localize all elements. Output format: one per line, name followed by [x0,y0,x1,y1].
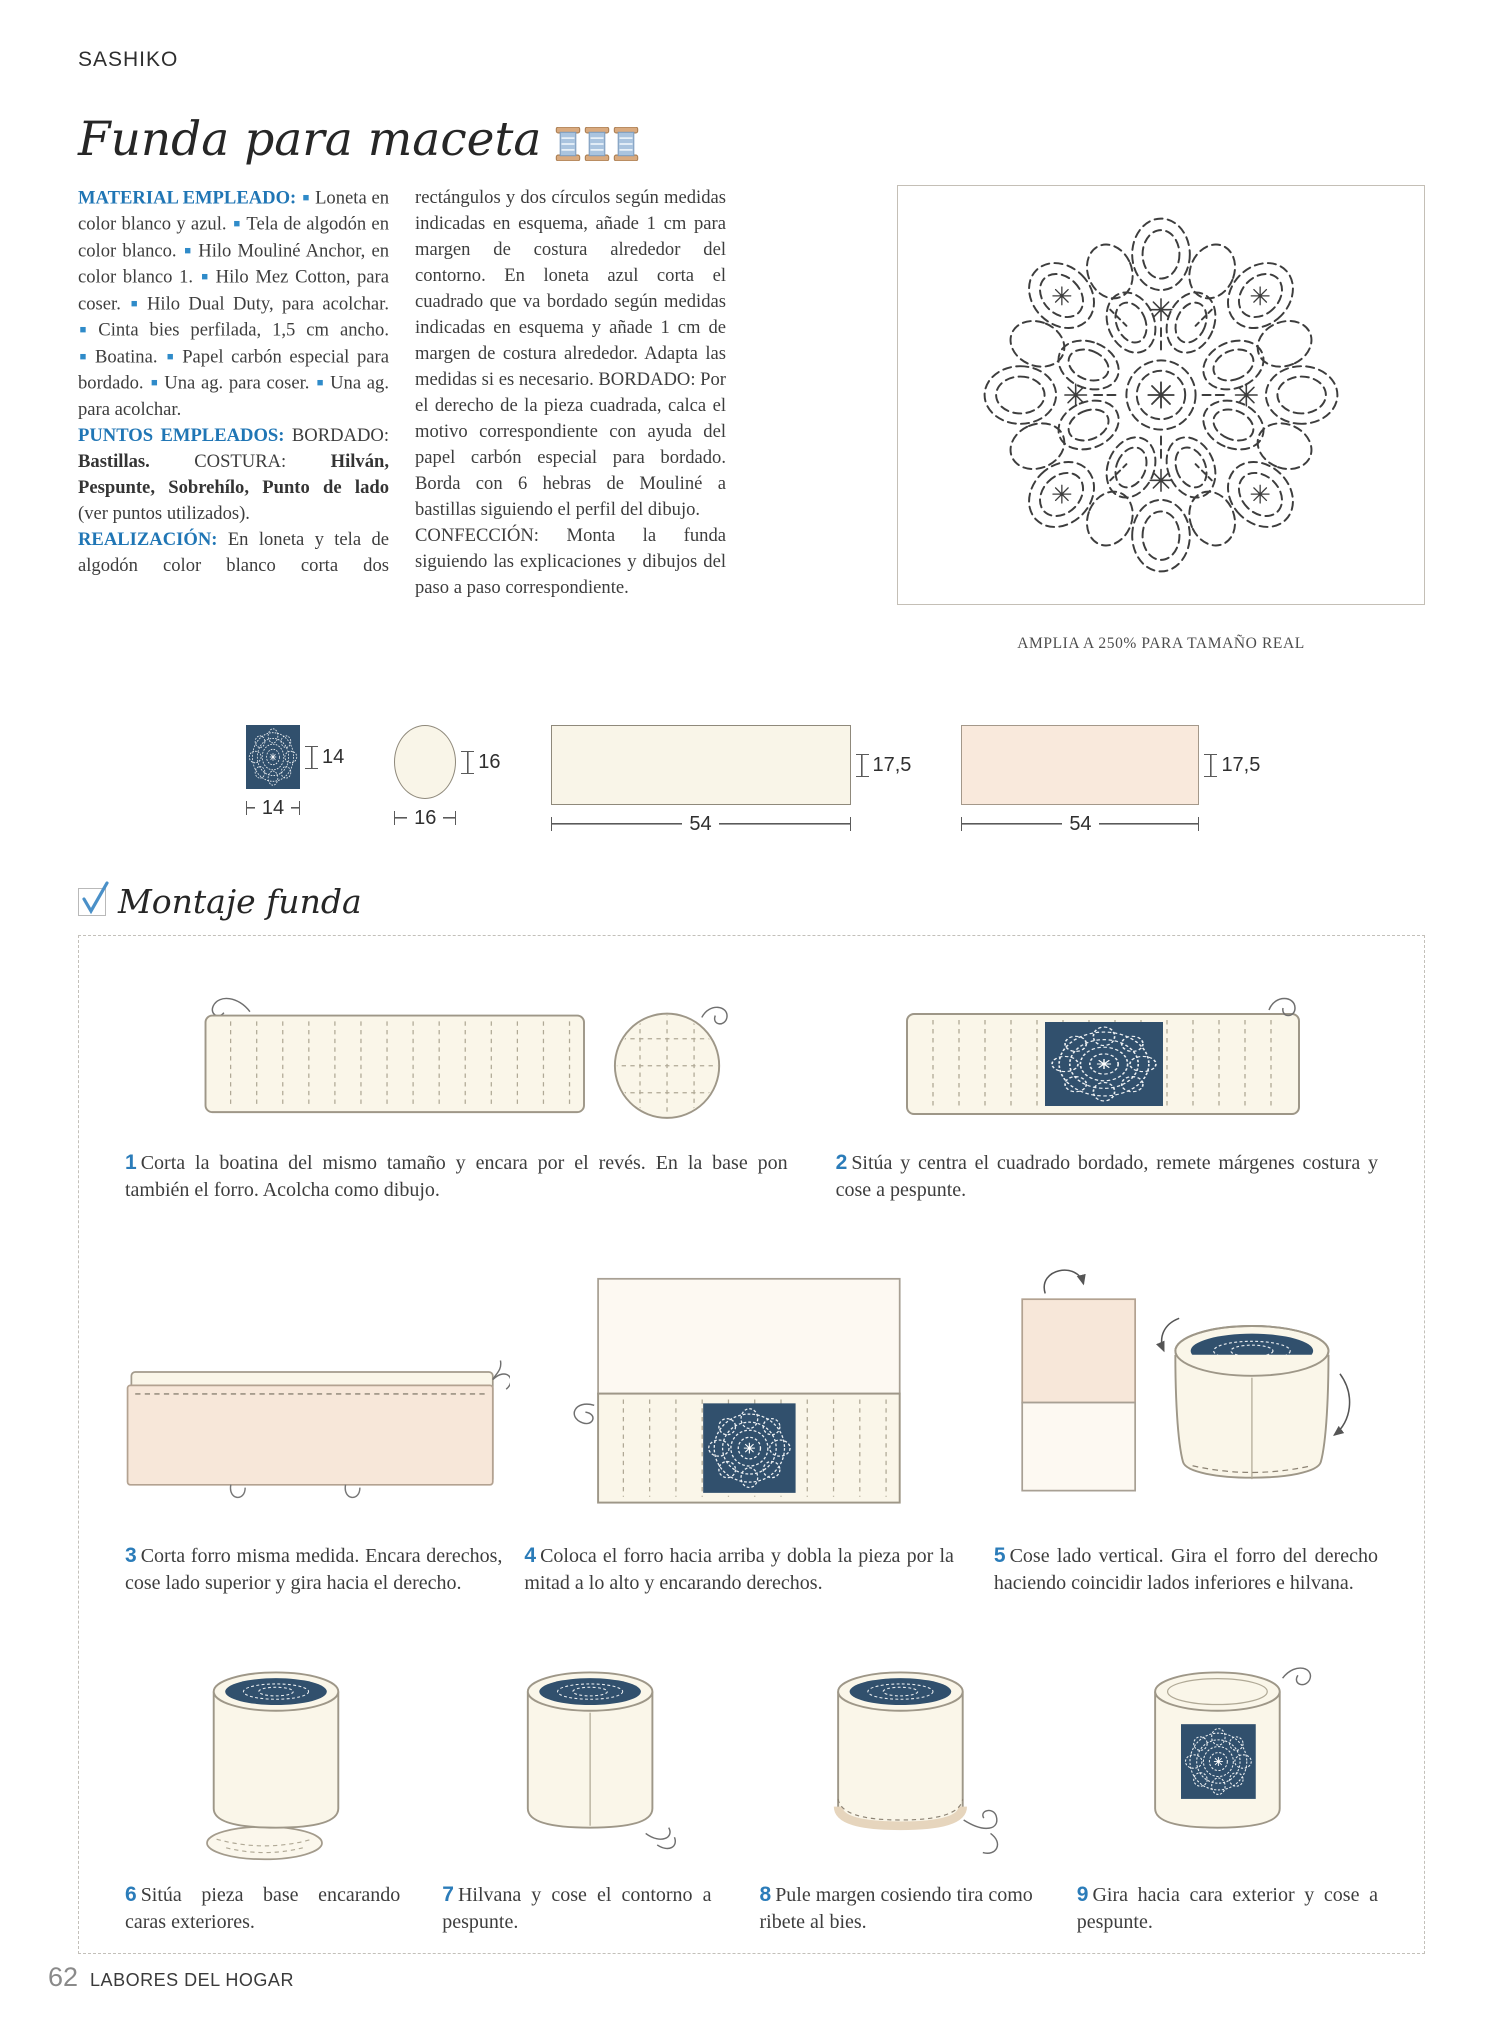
dim-height: 17,5 [1221,754,1260,777]
turning-cover-drawing [1008,1259,1358,1527]
embroidered-square-shape [246,725,300,789]
section-kicker: SASHIKO [78,48,1425,72]
magazine-page: SASHIKO Funda para maceta MATERIAL EMPLE… [0,0,1500,2040]
step-8-caption: 8Pule margen cosiendo tira como ribete a… [760,1882,1033,1935]
step-5: 5Cose lado vertical. Gira el forro del d… [980,1259,1386,1596]
measurement-schema: 14 14 16 16 17,5 54 17,5 54 [246,725,1425,834]
schema-circle-piece: 16 16 [394,725,500,828]
circle-shape [394,725,456,799]
step-number: 5 [994,1544,1010,1567]
step-5-caption: 5Cose lado vertical. Gira el forro del d… [994,1543,1378,1596]
dim-width: 14 [255,797,291,820]
article: MATERIAL EMPLEADO: ■Loneta en color blan… [78,185,1425,653]
step-4-caption: 4Coloca el forro hacia arriba y dobla la… [524,1543,954,1596]
schema-square-piece: 14 14 [246,725,344,818]
quilted-rectangle-and-circle-drawing [192,984,752,1134]
steps-row-1: 1Corta la boatina del mismo tamaño y enc… [117,962,1386,1203]
step-3-caption: 3Corta forro misma medida. Encara derech… [125,1543,502,1596]
step-number: 3 [125,1544,141,1567]
step-text: Hilvana y cose el contorno a pespunte. [442,1884,711,1933]
step-2-illustration [828,962,1386,1134]
step-9-illustration [1069,1638,1386,1866]
step-number: 7 [442,1883,458,1906]
thread-spool-icon [584,127,610,161]
step-text: Cose lado vertical. Gira el forro del de… [994,1545,1378,1594]
step-number: 4 [524,1544,540,1567]
thread-spool-icon [555,127,581,161]
page-title: Funda para maceta [78,116,541,163]
step-text: Coloca el forro hacia arriba y dobla la … [524,1545,954,1594]
steps-box: 1Corta la boatina del mismo tamaño y enc… [78,935,1425,1954]
montaje-header: Montaje funda [78,882,1425,921]
dim-width: 54 [1062,813,1098,836]
montaje-title: Montaje funda [118,882,362,921]
dim-height: 17,5 [873,754,912,777]
title-row: Funda para maceta [78,116,1425,163]
quilted-rectangle-with-embroidered-square-drawing [892,984,1322,1134]
step-1-caption: 1Corta la boatina del mismo tamaño y enc… [125,1150,788,1203]
step-text: Pule margen cosiendo tira como ribete al… [760,1884,1033,1933]
step-4-illustration [510,1259,980,1527]
thread-spool-icon [613,127,639,161]
finished-cover-drawing [1127,1636,1327,1866]
step-1-illustration [117,962,828,1134]
steps-row-2: 3Corta forro misma medida. Encara derech… [117,1259,1386,1596]
step-3-illustration [117,1259,510,1527]
step-number: 9 [1077,1883,1093,1906]
step-text: Corta forro misma medida. Encara derecho… [125,1545,502,1594]
pattern-caption: AMPLIA A 250% PARA TAMAÑO REAL [897,635,1425,653]
page-footer: 62 LABORES DEL HOGAR [48,1962,294,1993]
checkbox-icon [78,888,106,916]
step-number: 2 [836,1151,852,1174]
dim-width: 54 [682,813,718,836]
step-7-caption: 7Hilvana y cose el contorno a pespunte. [442,1882,711,1935]
schema-pink-rectangle-piece: 17,5 54 [961,725,1260,834]
step-5-illustration [980,1259,1386,1527]
step-6-illustration [117,1638,434,1866]
paragraph-puntos: PUNTOS EMPLEADOS: BORDADO: Bastillas. CO… [78,423,389,527]
step-text: Sitúa y centra el cuadrado bordado, reme… [836,1152,1378,1201]
step-7-illustration [434,1638,751,1866]
step-number: 1 [125,1151,141,1174]
step-number: 6 [125,1883,141,1906]
step-7: 7Hilvana y cose el contorno a pespunte. [434,1638,751,1935]
thread-spools [555,127,639,163]
cylinder-with-bias-tape-drawing [810,1636,1010,1866]
step-text: Sitúa pieza base encarando caras exterio… [125,1884,400,1933]
article-text-columns: MATERIAL EMPLEADO: ■Loneta en color blan… [78,185,726,653]
step-8-illustration [752,1638,1069,1866]
step-text: Corta la boatina del mismo tamaño y enca… [125,1152,788,1201]
check-icon [77,877,113,917]
step-1: 1Corta la boatina del mismo tamaño y enc… [117,962,828,1203]
step-4: 4Coloca el forro hacia arriba y dobla la… [510,1259,980,1596]
cream-rectangle-shape [551,725,851,805]
lined-rectangles-drawing [118,1347,510,1527]
step-2-caption: 2Sitúa y centra el cuadrado bordado, rem… [836,1150,1378,1203]
sashiko-pattern-box [897,185,1425,605]
pink-rectangle-shape [961,725,1199,805]
paragraph-confeccion: CONFECCIÓN: Monta la funda siguiendo las… [415,523,726,601]
step-9: 9Gira hacia cara exterior y cose a pespu… [1069,1638,1386,1935]
page-number: 62 [48,1962,78,1993]
paragraph-material: MATERIAL EMPLEADO: ■Loneta en color blan… [78,185,389,423]
step-6: 6Sitúa pieza base encarando caras exteri… [117,1638,434,1935]
step-2: 2Sitúa y centra el cuadrado bordado, rem… [828,962,1386,1203]
dim-width: 16 [407,807,443,830]
magazine-name: LABORES DEL HOGAR [90,1970,294,1991]
step-8: 8Pule margen cosiendo tira como ribete a… [752,1638,1069,1935]
steps-row-3: 6Sitúa pieza base encarando caras exteri… [117,1638,1386,1935]
cylinder-with-thread-drawing [500,1636,685,1866]
sashiko-mandala-pattern [965,199,1357,591]
step-6-caption: 6Sitúa pieza base encarando caras exteri… [125,1882,400,1935]
cylinder-with-base-drawing [186,1636,366,1866]
step-text: Gira hacia cara exterior y cose a pespun… [1077,1884,1378,1933]
dim-height: 16 [478,751,500,774]
folded-piece-drawing [565,1269,925,1527]
step-number: 8 [760,1883,776,1906]
step-3: 3Corta forro misma medida. Encara derech… [117,1259,510,1596]
pattern-figure: AMPLIA A 250% PARA TAMAÑO REAL [897,185,1425,653]
dim-height: 14 [322,746,344,769]
schema-cream-rectangle-piece: 17,5 54 [551,725,912,834]
step-9-caption: 9Gira hacia cara exterior y cose a pespu… [1077,1882,1378,1935]
